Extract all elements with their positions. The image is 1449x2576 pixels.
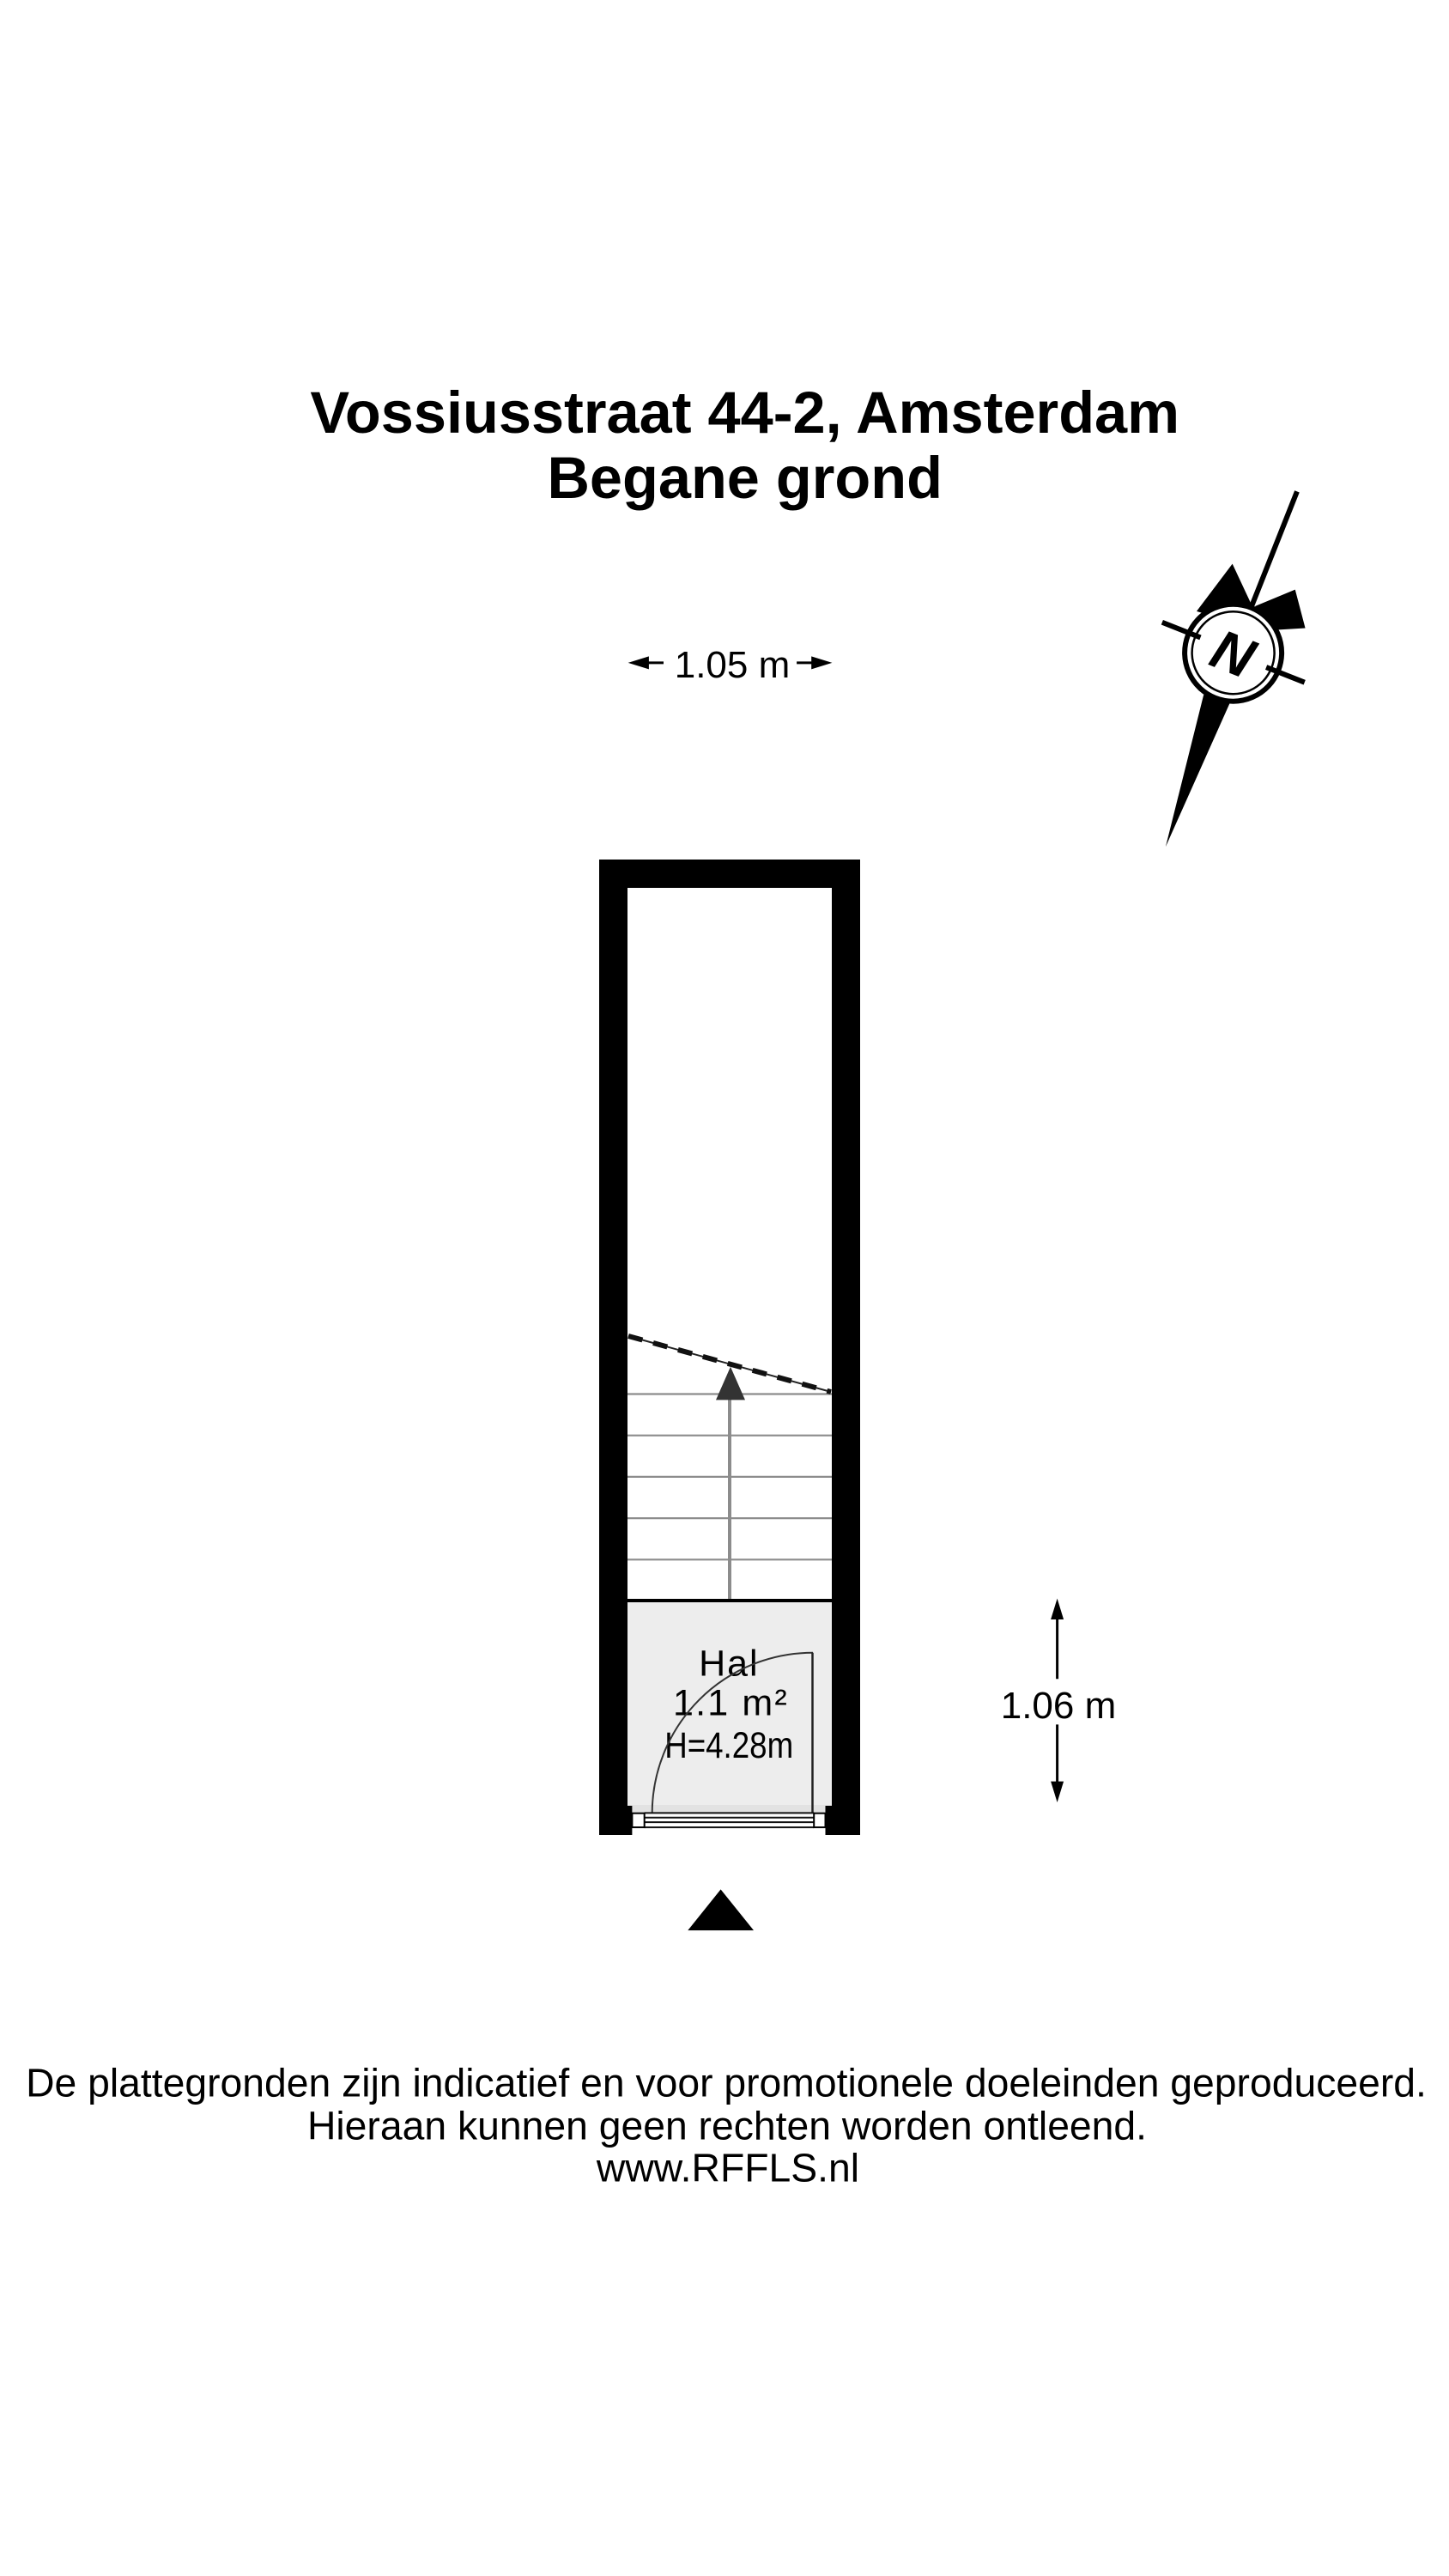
svg-text:1.1 m²: 1.1 m² <box>673 1683 787 1724</box>
svg-text:Vossiusstraat 44-2, Amsterdam: Vossiusstraat 44-2, Amsterdam <box>310 380 1179 446</box>
svg-text:Begane grond: Begane grond <box>547 445 943 511</box>
svg-text:www.RFFLS.nl: www.RFFLS.nl <box>596 2146 859 2190</box>
svg-text:Hieraan kunnen geen rechten wo: Hieraan kunnen geen rechten worden ontle… <box>307 2103 1147 2148</box>
svg-text:H=4.28m: H=4.28m <box>664 1725 793 1766</box>
svg-text:1.06 m: 1.06 m <box>1001 1685 1117 1727</box>
svg-text:Hal: Hal <box>699 1643 757 1684</box>
svg-text:De plattegronden zijn indicati: De plattegronden zijn indicatief en voor… <box>26 2061 1427 2105</box>
svg-text:1.05 m: 1.05 m <box>675 644 791 686</box>
